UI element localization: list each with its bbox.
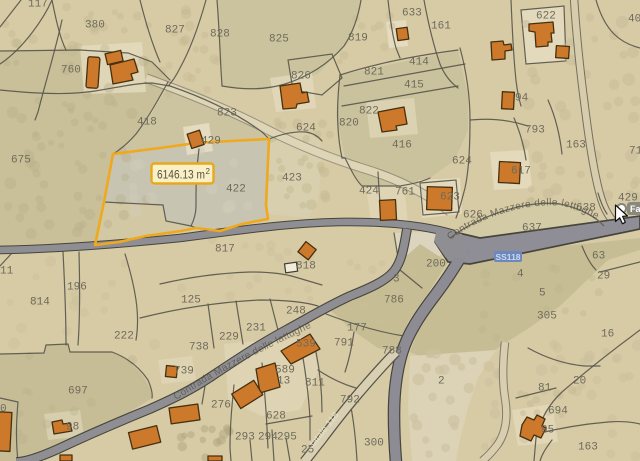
svg-text:628: 628 (266, 411, 286, 423)
svg-text:422: 422 (226, 184, 246, 196)
svg-text:827: 827 (165, 25, 185, 37)
svg-text:819: 819 (348, 33, 368, 45)
svg-text:161: 161 (431, 21, 451, 33)
svg-text:638: 638 (576, 203, 596, 215)
svg-text:617: 617 (511, 166, 531, 178)
svg-text:822: 822 (359, 106, 379, 118)
svg-text:811: 811 (305, 378, 325, 390)
svg-text:792: 792 (340, 395, 360, 407)
svg-text:276: 276 (211, 400, 231, 412)
svg-text:3: 3 (393, 274, 400, 286)
svg-text:Fa: Fa (630, 204, 640, 214)
svg-text:539: 539 (296, 339, 316, 351)
svg-text:163: 163 (566, 140, 586, 152)
svg-text:98: 98 (66, 422, 79, 434)
svg-text:20: 20 (573, 376, 586, 388)
svg-text:633: 633 (402, 8, 422, 20)
svg-text:697: 697 (68, 386, 88, 398)
svg-text:738: 738 (189, 342, 209, 354)
svg-text:786: 786 (384, 295, 404, 307)
svg-text:196: 196 (67, 282, 87, 294)
svg-text:622: 622 (536, 11, 556, 23)
svg-text:675: 675 (11, 155, 31, 167)
svg-text:401: 401 (628, 14, 640, 26)
svg-text:300: 300 (364, 438, 384, 450)
svg-text:231: 231 (246, 323, 266, 335)
svg-text:293: 293 (235, 432, 255, 444)
svg-text:177: 177 (347, 323, 367, 335)
svg-text:0: 0 (0, 404, 7, 416)
svg-text:760: 760 (61, 65, 81, 77)
svg-text:739: 739 (174, 366, 194, 378)
svg-text:229: 229 (219, 332, 239, 344)
svg-text:2: 2 (206, 167, 211, 176)
svg-text:305: 305 (537, 311, 557, 323)
svg-text:415: 415 (404, 80, 424, 92)
svg-text:163: 163 (578, 442, 598, 454)
svg-text:25: 25 (301, 445, 314, 457)
svg-text:624: 624 (452, 156, 472, 168)
svg-text:828: 828 (210, 29, 230, 41)
svg-text:95: 95 (541, 425, 554, 437)
svg-text:793: 793 (525, 125, 545, 137)
svg-text:814: 814 (30, 297, 50, 309)
svg-text:416: 416 (392, 140, 412, 152)
svg-text:81: 81 (538, 383, 552, 395)
svg-text:429: 429 (201, 136, 221, 148)
svg-text:117: 117 (28, 0, 48, 11)
svg-text:63: 63 (592, 251, 605, 263)
svg-text:4: 4 (517, 269, 524, 281)
svg-text:13: 13 (277, 376, 290, 388)
svg-text:418: 418 (137, 117, 157, 129)
svg-text:624: 624 (296, 123, 316, 135)
svg-text:626: 626 (463, 210, 483, 222)
svg-text:820: 820 (339, 118, 359, 130)
svg-text:637: 637 (522, 223, 542, 235)
svg-text:825: 825 (269, 34, 289, 46)
svg-text:125: 125 (181, 295, 201, 307)
svg-text:16: 16 (601, 329, 614, 341)
svg-text:424: 424 (359, 186, 379, 198)
svg-text:788: 788 (382, 346, 402, 358)
svg-text:29: 29 (597, 271, 610, 283)
svg-text:821: 821 (364, 67, 384, 79)
svg-text:761: 761 (395, 187, 415, 199)
svg-text:817: 817 (215, 244, 235, 256)
svg-text:222: 222 (114, 331, 134, 343)
svg-text:2: 2 (438, 376, 445, 388)
svg-text:818: 818 (296, 261, 316, 273)
svg-text:5: 5 (539, 288, 546, 300)
svg-text:94: 94 (515, 93, 529, 105)
svg-text:826: 826 (291, 71, 311, 83)
svg-text:423: 423 (282, 173, 302, 185)
svg-text:294: 294 (258, 432, 278, 444)
svg-text:623: 623 (440, 192, 460, 204)
svg-text:248: 248 (286, 306, 306, 318)
svg-text:6146.13 m: 6146.13 m (157, 168, 205, 182)
svg-text:295: 295 (277, 432, 297, 444)
svg-text:823: 823 (217, 108, 237, 120)
svg-text:11: 11 (0, 266, 14, 278)
svg-text:414: 414 (409, 57, 429, 69)
svg-text:791: 791 (334, 338, 354, 350)
svg-text:SS118: SS118 (495, 252, 520, 262)
svg-text:694: 694 (548, 406, 568, 418)
svg-text:380: 380 (85, 20, 105, 32)
svg-text:71: 71 (629, 146, 640, 158)
svg-text:200: 200 (426, 259, 446, 271)
